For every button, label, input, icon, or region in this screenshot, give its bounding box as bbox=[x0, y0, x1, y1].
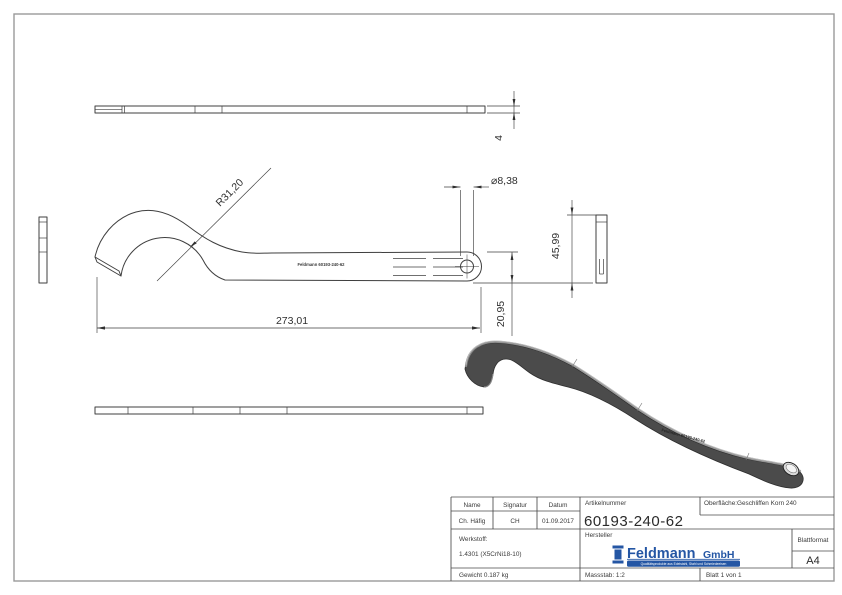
front-view: Feldmann 60193-240-62 bbox=[95, 210, 482, 281]
dimension-end-height: 20,95 bbox=[473, 252, 593, 336]
dim-radius-text: R31,20 bbox=[214, 177, 247, 210]
iso-render: Feldmann 60193-240-62 bbox=[465, 341, 803, 488]
engraving-2d-text: Feldmann 60193-240-62 bbox=[297, 262, 345, 267]
dim-hole-text: ⌀8,38 bbox=[491, 175, 518, 187]
title-block: Name Signatur Datum Artikelnummer Oberfl… bbox=[451, 497, 834, 581]
material-label: Werkstoff: bbox=[459, 536, 488, 543]
article-number-label: Artikelnummer bbox=[585, 500, 627, 507]
signature-header: Signatur bbox=[503, 502, 528, 509]
drawing-sheet: 4 Feldmann 60193-240-62 R31,20 bbox=[0, 0, 842, 595]
manufacturer-logo: Feldmann GmbH Qualitätsprodukte aus Edel… bbox=[613, 546, 741, 567]
article-number-value: 60193-240-62 bbox=[584, 513, 683, 530]
surface-value: Geschliffen Korn 240 bbox=[737, 500, 797, 507]
surface-label: Oberfläche: bbox=[704, 500, 737, 507]
dimension-hole: ⌀8,38 bbox=[444, 175, 518, 256]
date-header: Datum bbox=[549, 502, 568, 509]
dimension-thickness: 4 bbox=[487, 91, 520, 141]
left-side-view bbox=[39, 217, 47, 283]
logo-tower-icon bbox=[613, 546, 624, 564]
dim-side-height-text: 45,99 bbox=[550, 233, 562, 259]
weight-value: Gewicht 0.187 kg bbox=[459, 572, 509, 579]
scale-value: Massstab: 1:2 bbox=[585, 572, 625, 579]
dim-end-height-text: 20,95 bbox=[495, 301, 507, 327]
wrench-outline bbox=[95, 210, 482, 281]
render-body bbox=[465, 343, 803, 488]
manufacturer-label: Hersteller bbox=[585, 532, 613, 539]
top-view bbox=[95, 106, 485, 113]
drawing-page: 4 Feldmann 60193-240-62 R31,20 bbox=[0, 0, 842, 595]
date-value: 01.09.2017 bbox=[542, 518, 574, 525]
sheet-frame bbox=[14, 14, 834, 581]
name-value: Ch. Häfig bbox=[459, 518, 486, 525]
bottom-view bbox=[95, 407, 483, 414]
grip-lines bbox=[393, 259, 463, 276]
sheet-value: Blatt 1 von 1 bbox=[706, 572, 742, 579]
dimension-radius: R31,20 bbox=[157, 168, 271, 281]
dim-length-text: 273,01 bbox=[276, 315, 308, 327]
signature-value: CH bbox=[510, 518, 520, 525]
dimension-length: 273,01 bbox=[97, 277, 481, 333]
right-side-view bbox=[596, 215, 607, 283]
material-value: 1.4301 (X5CrNi18-10) bbox=[459, 551, 522, 558]
name-header: Name bbox=[463, 502, 480, 509]
sheet-format-value: A4 bbox=[806, 555, 819, 567]
logo-tagline: Qualitätsprodukte aus Edelstahl, Stahl u… bbox=[641, 562, 727, 566]
title-block-grid bbox=[451, 497, 834, 581]
sheet-format-label: Blattformat bbox=[798, 537, 829, 544]
dim-thickness-text: 4 bbox=[493, 135, 505, 141]
